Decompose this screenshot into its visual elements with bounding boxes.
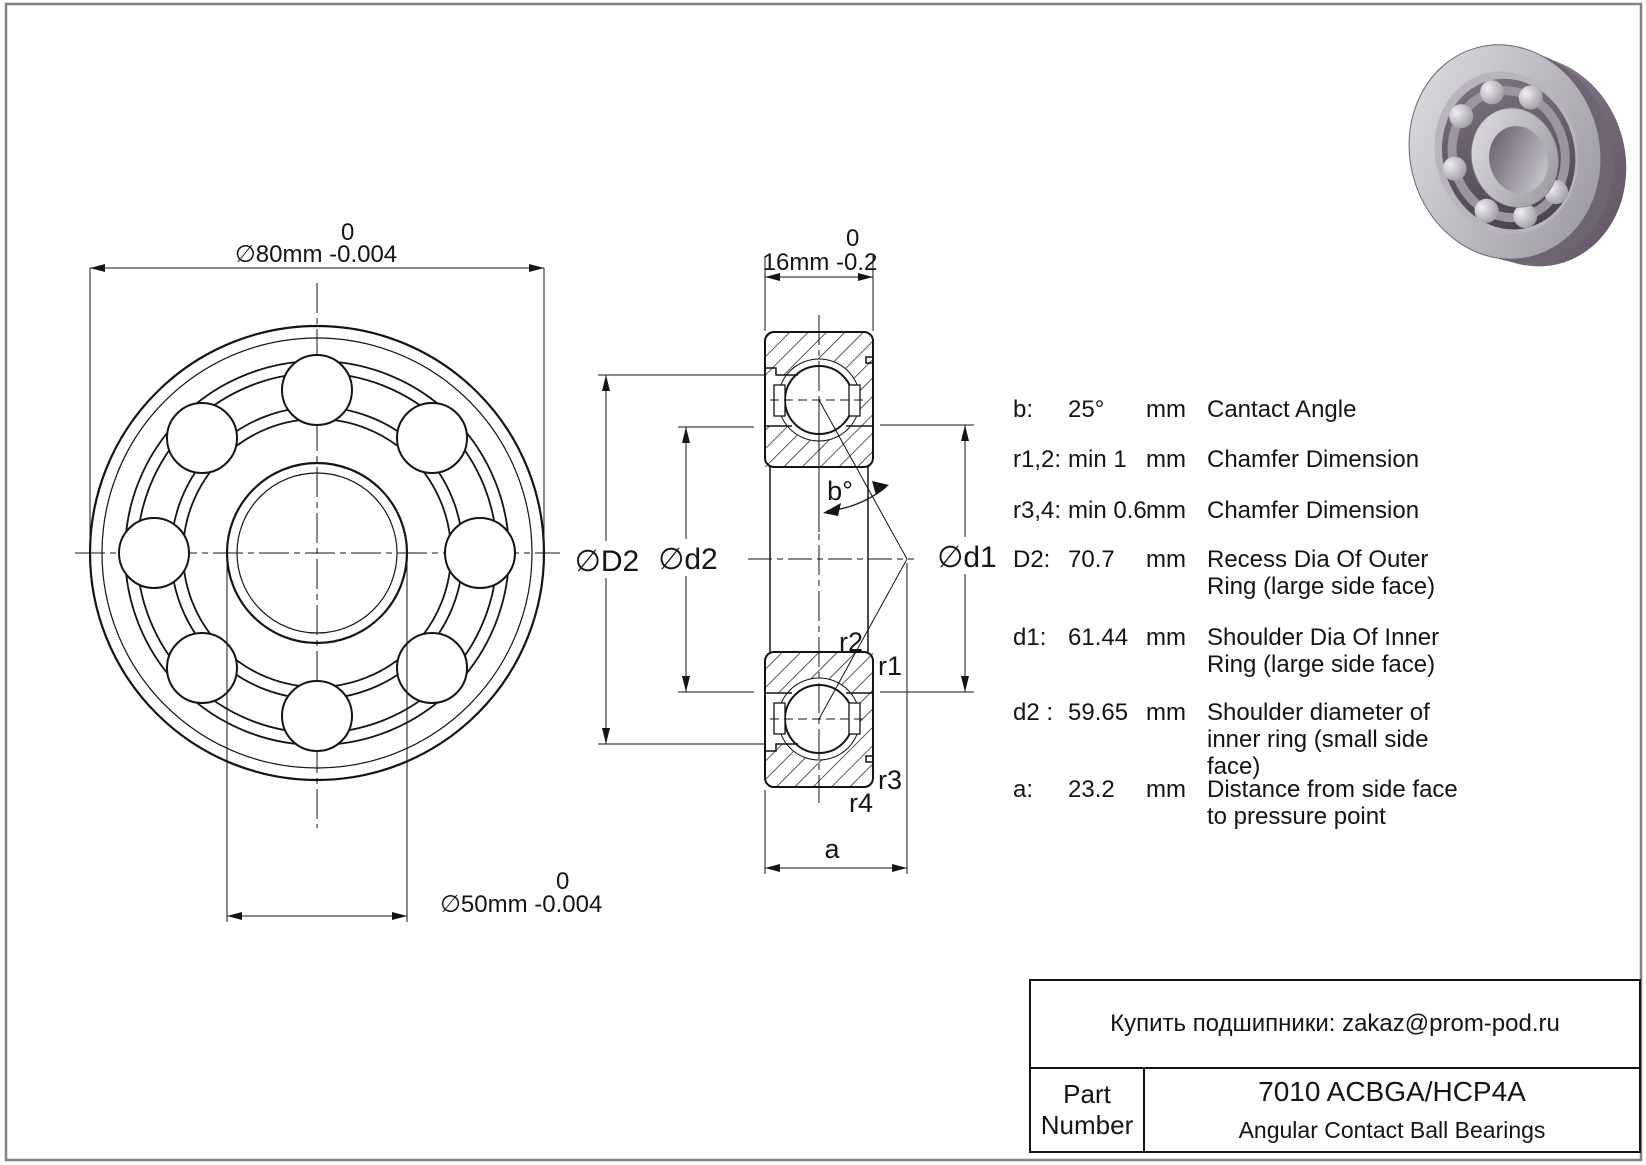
label-d2: ∅d2 xyxy=(658,543,718,576)
ball xyxy=(282,681,352,751)
engineering-drawing-page: 0 ∅80mm -0.004 0 ∅50mm -0.004 xyxy=(0,0,1646,1165)
label-contact-angle-b: b° xyxy=(827,476,853,506)
ball xyxy=(282,355,352,425)
section-view xyxy=(748,315,914,803)
label-r1: r1 xyxy=(878,651,902,681)
dimension-width-16mm: 0 16mm -0.2 xyxy=(763,225,878,331)
ball xyxy=(397,403,467,473)
contact-email-line: Купить подшипники: zakaz@prom-pod.ru xyxy=(1031,981,1639,1069)
dimension-bore-50mm: 0 ∅50mm -0.004 xyxy=(227,553,602,922)
label-d1: ∅d1 xyxy=(937,541,997,574)
ball xyxy=(167,403,237,473)
part-number-value: 7010 ACBGA/HCP4A xyxy=(1258,1076,1526,1108)
label-r4: r4 xyxy=(849,788,873,818)
part-number-label-cell: Part Number xyxy=(1031,1069,1145,1151)
label-a: a xyxy=(824,834,840,864)
bore-dimension-text: ∅50mm -0.004 xyxy=(440,891,602,918)
label-r2: r2 xyxy=(839,627,863,657)
width-dimension-text: 16mm -0.2 xyxy=(763,249,878,276)
bearing-category: Angular Contact Ball Bearings xyxy=(1239,1117,1546,1144)
bearing-3d-render xyxy=(1385,17,1646,294)
label-r3: r3 xyxy=(878,765,902,795)
ball xyxy=(445,518,515,588)
label-D2: ∅D2 xyxy=(575,545,639,578)
dimension-d2: ∅d2 xyxy=(656,427,754,692)
od-dimension-text: ∅80mm -0.004 xyxy=(235,241,397,268)
width-tolerance-upper: 0 xyxy=(846,225,859,252)
title-block: Купить подшипники: zakaz@prom-pod.ru Par… xyxy=(1029,979,1641,1153)
part-number-cell: 7010 ACBGA/HCP4A Angular Contact Ball Be… xyxy=(1145,1069,1639,1151)
ball xyxy=(119,518,189,588)
front-view xyxy=(75,283,560,828)
arc-arrow-right xyxy=(872,481,889,495)
